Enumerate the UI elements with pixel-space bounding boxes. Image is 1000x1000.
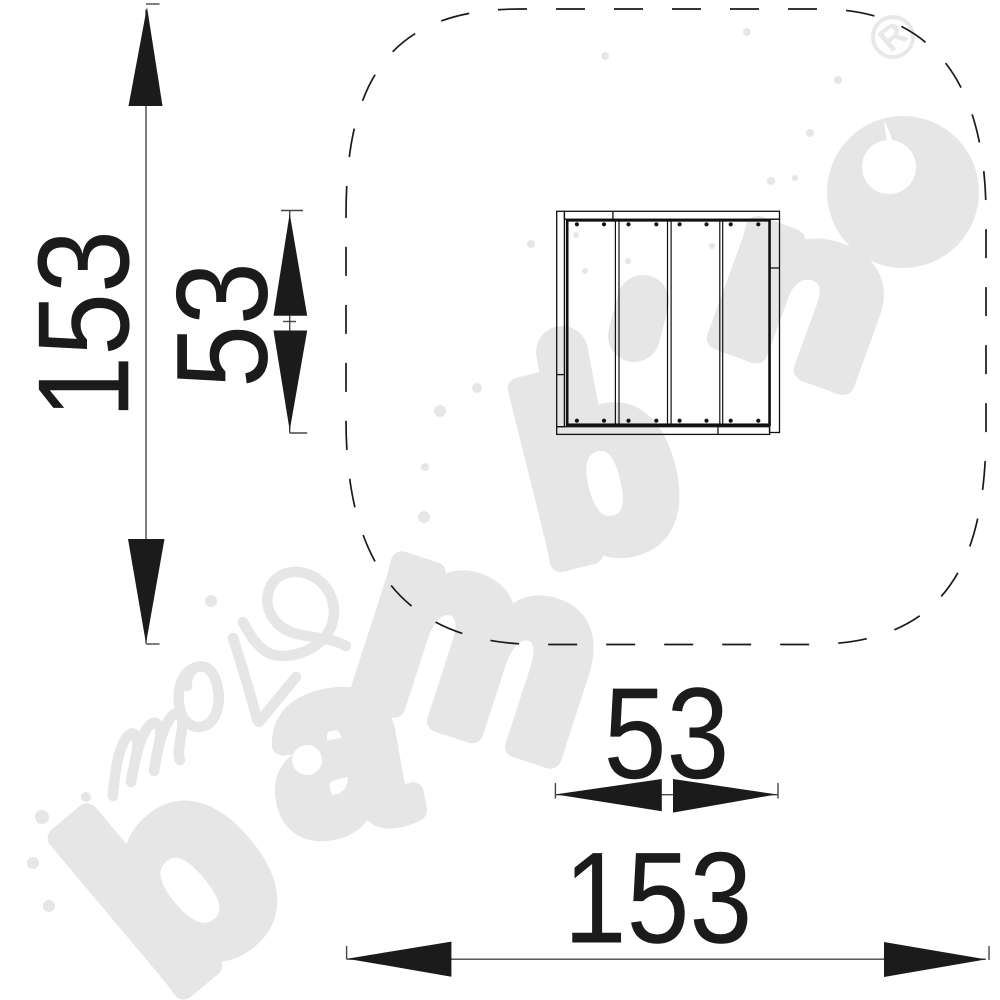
svg-text:53: 53: [604, 661, 730, 806]
svg-text:153: 153: [564, 825, 753, 970]
svg-text:153: 153: [11, 230, 156, 419]
svg-text:53: 53: [149, 262, 294, 388]
